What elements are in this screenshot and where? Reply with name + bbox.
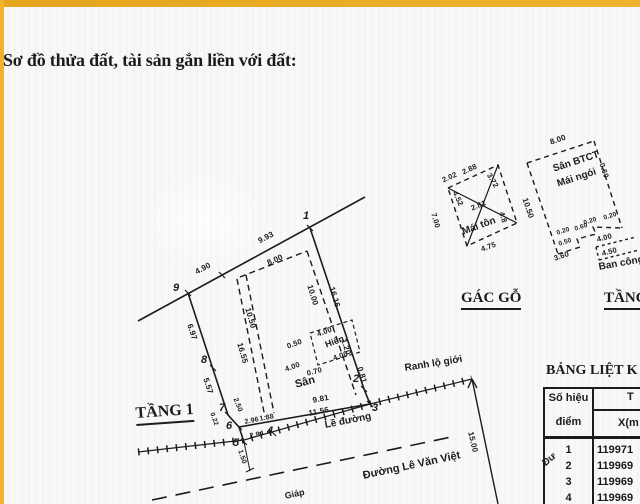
table-header-midline: [592, 409, 640, 411]
attic-heading: GÁC GỖ: [461, 290, 521, 310]
table-row-point: 2: [546, 461, 591, 472]
scan-edge-left: [0, 0, 4, 504]
scanned-land-document: Sơ đồ thửa đất, tài sản gắn liền với đất…: [0, 0, 640, 504]
floor1-heading: TẦNG 1: [135, 401, 195, 426]
point-1: 1: [303, 211, 309, 222]
table-heading: BẢNG LIỆT K: [546, 363, 638, 379]
table-col-coord-header: T: [627, 392, 634, 403]
point-8: 8: [201, 355, 207, 366]
attic-dim-g: 4.8: [498, 211, 508, 224]
table-col-point-header-1: Số hiệu: [546, 393, 591, 404]
point-9: 9: [173, 283, 179, 294]
table-row-x: 119969: [597, 477, 633, 488]
scan-edge-top: [0, 0, 640, 7]
table-column-divider: [592, 387, 594, 504]
point-5: 5: [233, 438, 239, 449]
table-row-point: 1: [546, 445, 591, 456]
table-col-x-header: X(m: [618, 418, 639, 429]
table-row-x: 119971: [597, 445, 633, 456]
table-row-x: 119969: [597, 461, 633, 472]
point-4: 4: [267, 426, 273, 437]
upper-heading: TẦNG: [604, 290, 640, 310]
point-6: 6: [226, 421, 232, 432]
table-row-point: 4: [546, 493, 591, 504]
table-row-x: 119969: [597, 493, 633, 504]
point-3: 3: [372, 403, 378, 414]
table-header-underline: [543, 436, 640, 439]
table-row-point: 3: [546, 477, 591, 488]
table-col-point-header-2: điểm: [546, 417, 591, 428]
point-7: 7: [219, 403, 225, 414]
